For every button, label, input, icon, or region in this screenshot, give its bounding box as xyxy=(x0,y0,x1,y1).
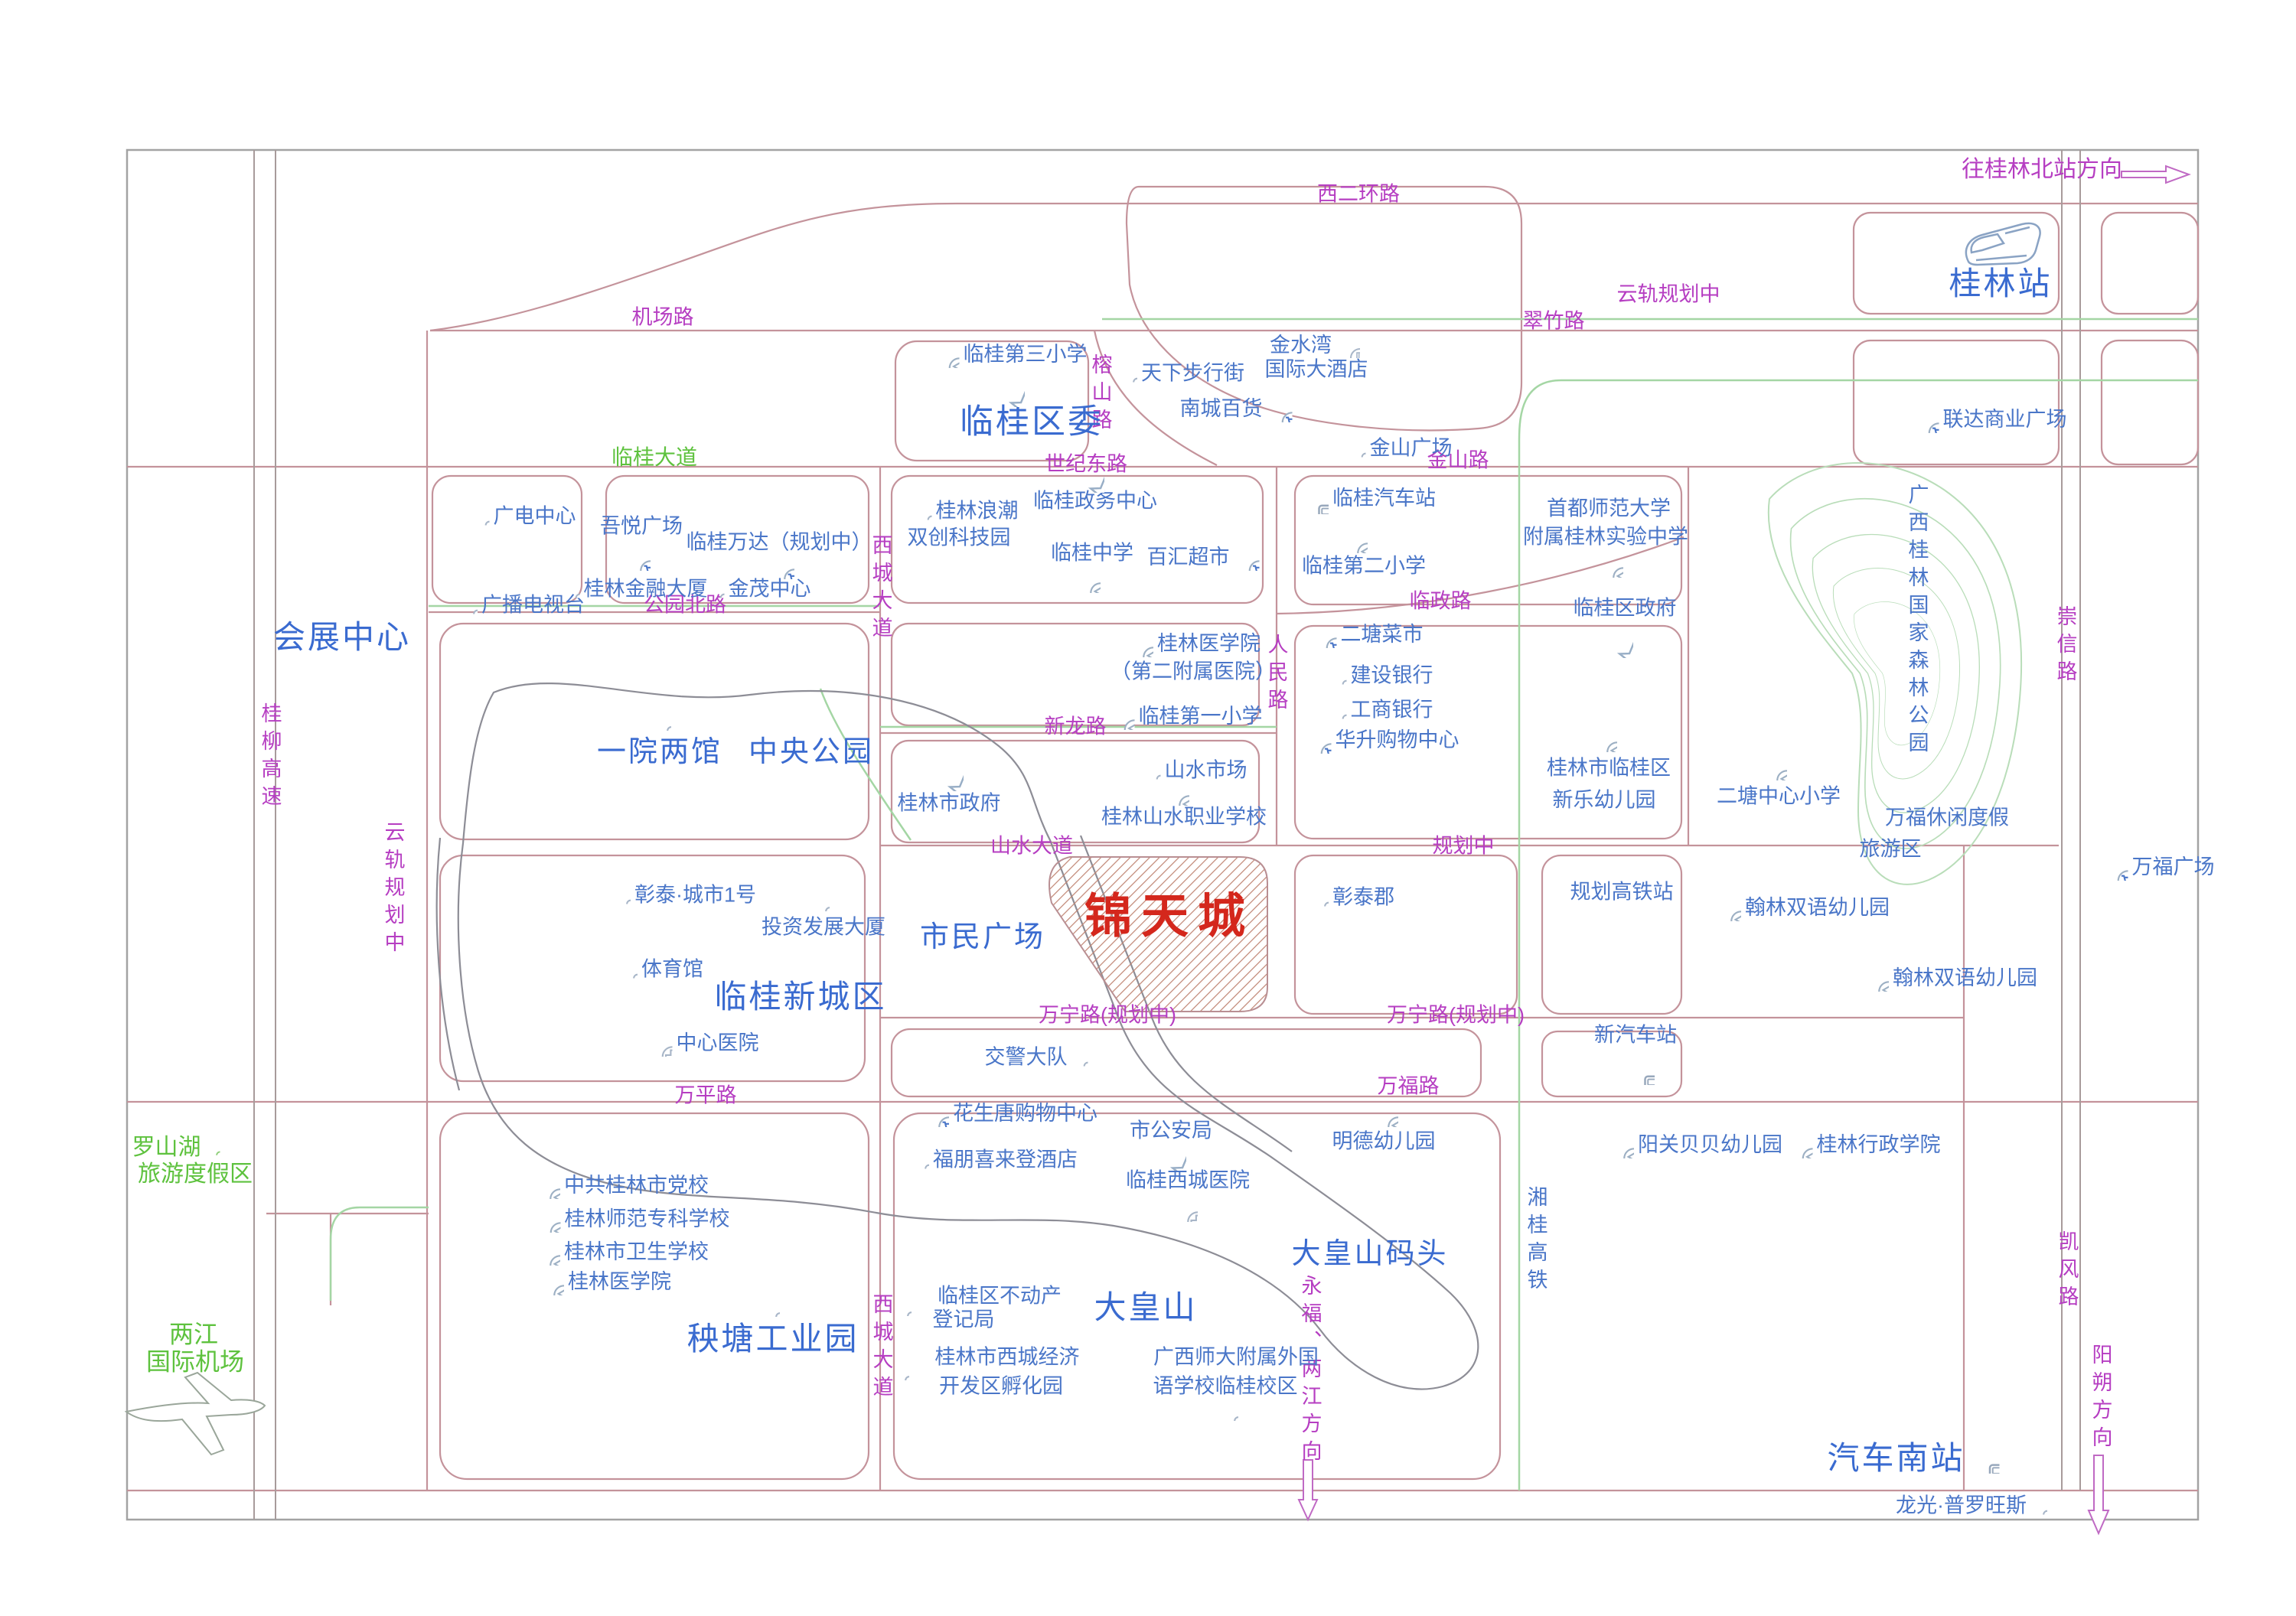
investment-tower: 投资发展大厦 xyxy=(762,915,885,939)
map-label-text: 湘桂高铁 xyxy=(1523,1186,1547,1296)
map-label-text: 广西师大附属外国 xyxy=(1153,1345,1319,1369)
cart-icon xyxy=(1267,396,1293,422)
map-label-text: 锦天城 xyxy=(1084,889,1254,943)
tianxia-walking-street: 天下步行街 xyxy=(1120,361,1244,385)
map-label-text: 秧塘工业园 xyxy=(687,1321,859,1357)
road-xierhuan: 西二环路 xyxy=(1317,182,1400,206)
shanshui-market: 山水市场 xyxy=(1144,758,1247,782)
yangguan-beibei-kindergarten: 阳关贝贝幼儿园 xyxy=(1608,1132,1782,1158)
road-xicheng-south: 西城大道 xyxy=(869,1293,892,1403)
real-estate-bureau-2: 登记局 xyxy=(933,1308,995,1331)
map-label-text: 万福路 xyxy=(1378,1074,1440,1098)
map-label-text: 百汇超市 xyxy=(1147,546,1230,569)
normal-college: 桂林师范专科学校 xyxy=(535,1207,730,1233)
shanshui-vocational-school: 桂林山水职业学校 xyxy=(1101,805,1267,829)
map-label-text: 桂林师范专科学校 xyxy=(565,1207,730,1231)
map-label-text: 双创科技园 xyxy=(908,526,1011,549)
map-label-text: 临桂中学 xyxy=(1051,541,1133,565)
school-icon xyxy=(1591,726,1617,752)
map-label-text: 桂林市西城经济 xyxy=(935,1345,1080,1369)
map-label-text: 桂林市卫生学校 xyxy=(564,1240,709,1264)
map-label-text: 新汽车站 xyxy=(1594,1023,1677,1047)
map-label-text: 翰林双语幼儿园 xyxy=(1893,966,2037,990)
xicheng-incubator-1: 桂林市西城经济 xyxy=(935,1345,1080,1369)
school-icon xyxy=(1787,1132,1813,1158)
second-primary-school: 临桂第二小学 xyxy=(1302,554,1426,578)
map-label-text: 旅游度假区 xyxy=(138,1161,253,1188)
arrow-down-yangshuo-icon xyxy=(2089,1455,2108,1533)
mingde-kindergarten: 明德幼儿园 xyxy=(1332,1129,1436,1153)
guilin-city-government: 桂林市政府 xyxy=(898,791,1001,815)
map-label-text: 临桂政务中心 xyxy=(1033,489,1157,513)
road-wanning-east: 万宁路(规划中) xyxy=(1387,1003,1525,1027)
central-park: 中央公园 xyxy=(748,736,874,770)
luoshan-resort: 旅游度假区 xyxy=(138,1161,253,1188)
map-label-text: 云轨规划中 xyxy=(1617,282,1720,306)
map-label-text: 临桂新城区 xyxy=(714,979,886,1015)
circle-icon xyxy=(1071,1049,1088,1066)
train-icon xyxy=(1966,223,2040,265)
circle-icon xyxy=(895,1299,912,1316)
map-label-text: 汽车南站 xyxy=(1827,1440,1965,1477)
cart-icon xyxy=(625,545,651,571)
school-icon xyxy=(1075,567,1101,593)
road-linzheng: 临政路 xyxy=(1410,589,1472,613)
langchao-tech-park-2: 双创科技园 xyxy=(908,526,1011,549)
xinle-kindergarten-2: 新乐幼儿园 xyxy=(1553,788,1656,812)
gymnasium: 体育馆 xyxy=(621,957,703,981)
map-label-text: 桂林医学院 xyxy=(1157,632,1261,656)
map-label-text: 万平路 xyxy=(675,1083,737,1107)
circle-icon xyxy=(1221,1404,1238,1421)
map-label-text: （第二附属医院） xyxy=(1110,660,1276,683)
star-icon xyxy=(1600,624,1633,658)
map-label-text: 市民广场 xyxy=(920,921,1045,955)
citizen-square: 市民广场 xyxy=(920,921,1045,955)
map-label-text: 国际机场 xyxy=(146,1348,244,1377)
planned-hsr-station: 规划高铁站 xyxy=(1570,880,1674,904)
road-linggui-avenue: 临桂大道 xyxy=(612,445,697,470)
bus-icon xyxy=(1624,1054,1655,1085)
map-label-text: 会展中心 xyxy=(273,619,411,656)
third-primary-school: 临桂第三小学 xyxy=(934,342,1088,368)
map-label-text: 金茂中心 xyxy=(729,577,811,601)
gxnu-foreign-school-2: 语学校临桂校区 xyxy=(1153,1374,1298,1398)
map-label-text: 开发区孵化园 xyxy=(939,1374,1063,1398)
map-label-text: 临桂大道 xyxy=(612,445,697,470)
map-label-text: 桂林市临桂区 xyxy=(1547,756,1671,780)
school-icon xyxy=(1109,704,1135,730)
circle-icon xyxy=(895,1299,912,1316)
school-icon xyxy=(1863,966,1889,992)
map-label-text: 临桂第二小学 xyxy=(1302,554,1426,578)
map-label-text: 首都师范大学 xyxy=(1547,497,1671,520)
map-label-text: 临桂第一小学 xyxy=(1139,705,1263,728)
circle-icon xyxy=(614,887,631,904)
road-jichang: 机场路 xyxy=(632,305,694,329)
map-label-text: 广电中心 xyxy=(494,504,576,528)
jintiancheng-label: 锦天城 xyxy=(1084,889,1254,943)
star-icon xyxy=(1153,1139,1186,1172)
map-label-text: 桂林浪潮 xyxy=(936,499,1019,523)
map-label-text: 阳关贝贝幼儿园 xyxy=(1638,1133,1782,1157)
yangtang-industrial-park: 秧塘工业园 xyxy=(687,1321,859,1357)
circle-icon xyxy=(708,581,725,598)
map-label-text: 交警大队 xyxy=(985,1045,1068,1069)
circle-icon xyxy=(892,1363,909,1380)
map-label-text: 规划中 xyxy=(1433,834,1495,858)
cart-icon xyxy=(2102,855,2128,881)
map-label-text: 桂林金融大厦 xyxy=(584,577,708,601)
hospital-icon xyxy=(1172,1196,1198,1222)
circle-icon xyxy=(763,1300,780,1317)
broadcast-center: 广电中心 xyxy=(473,504,576,528)
map-label-text: 万宁路(规划中) xyxy=(1039,1003,1176,1027)
circle-icon xyxy=(1221,1404,1238,1421)
map-label-text: 附属桂林实验中学 xyxy=(1523,525,1688,549)
one-hospital-two-halls: 一院两馆 xyxy=(597,736,722,770)
map-label-text: 花生唐购物中心 xyxy=(953,1102,1097,1126)
bus-icon xyxy=(1298,484,1329,514)
map-label-text: 桂林医学院 xyxy=(568,1270,671,1294)
cart-icon xyxy=(768,553,794,579)
map-label-text: 西城大道 xyxy=(869,1293,892,1403)
health-school: 桂林市卫生学校 xyxy=(534,1240,709,1266)
administration-institute: 桂林行政学院 xyxy=(1787,1132,1941,1158)
circle-icon xyxy=(813,894,830,911)
lianda-plaza: 联达商业广场 xyxy=(1913,407,2067,433)
bus-icon xyxy=(1969,1443,2000,1474)
circle-icon xyxy=(654,714,671,731)
map-label-text: 临桂区不动产 xyxy=(938,1284,1062,1308)
map-label-text: 新龙路 xyxy=(1045,715,1107,738)
direction-guilin-north: 往桂林北站方向 xyxy=(1962,157,2122,184)
ertang-central-primary: 二塘中心小学 xyxy=(1717,784,1841,808)
map-label-text: 桂林山水职业学校 xyxy=(1101,805,1267,829)
map-label-text: 天下步行街 xyxy=(1141,361,1244,385)
map-label-text: 新乐幼儿园 xyxy=(1553,788,1656,812)
rail-xianggui: 湘桂高铁 xyxy=(1523,1186,1547,1296)
map-label-text: 山水大道 xyxy=(990,834,1073,858)
school-icon xyxy=(1342,527,1368,553)
linggui-bus-station: 临桂汽车站 xyxy=(1298,484,1436,514)
school-icon xyxy=(1342,527,1368,553)
map-label-text: 福朋喜来登酒店 xyxy=(933,1148,1078,1171)
circle-icon xyxy=(915,503,932,520)
circle-icon xyxy=(1330,702,1347,718)
map-label-text: 登记局 xyxy=(933,1308,995,1331)
hanlin-kindergarten-1: 翰林双语幼儿园 xyxy=(1715,895,1890,921)
huashengtang-mall: 花生唐购物中心 xyxy=(923,1101,1097,1127)
hospital-icon xyxy=(647,1031,673,1057)
arrow-right-icon xyxy=(2122,166,2189,183)
school-icon xyxy=(534,1173,560,1199)
map-label-text: 广西桂林国家森林公园 xyxy=(1904,484,1928,759)
government-affairs-center: 临桂政务中心 xyxy=(1033,489,1157,513)
convention-center: 会展中心 xyxy=(273,619,411,656)
map-label-text: 临桂区委 xyxy=(960,403,1104,442)
wanda-planned: 临桂万达（规划中） xyxy=(687,530,872,554)
central-hospital: 中心医院 xyxy=(647,1031,759,1057)
map-label-text: 大皇山 xyxy=(1094,1289,1197,1326)
map-label-text: 投资发展大厦 xyxy=(762,915,885,939)
map-label-text: 凯风路 xyxy=(2054,1230,2078,1313)
school-icon xyxy=(1163,780,1189,806)
linggui-new-town: 临桂新城区 xyxy=(714,979,886,1015)
map-label-text: 万福广场 xyxy=(2132,855,2215,879)
icbc-bank: 工商银行 xyxy=(1330,698,1433,722)
guilin-medical-univ-1: 桂林医学院 xyxy=(1127,631,1261,657)
zhangtai-county: 彰泰郡 xyxy=(1312,885,1394,909)
cart-icon xyxy=(1306,728,1332,754)
real-estate-bureau-1: 临桂区不动产 xyxy=(938,1284,1062,1308)
wanfu-resort-2: 旅游区 xyxy=(1860,837,1922,861)
star-icon xyxy=(1600,624,1633,658)
map-label-text: 吾悦广场 xyxy=(600,514,683,538)
finance-tower: 桂林金融大厦 xyxy=(563,577,708,601)
building-icon xyxy=(1336,334,1360,358)
map-label-text: 龙光·普罗旺斯 xyxy=(1896,1494,2027,1517)
road-wanfu: 万福路 xyxy=(1378,1074,1440,1098)
map-label-text: 联达商业广场 xyxy=(1943,408,2067,432)
map-label-text: 二塘中心小学 xyxy=(1717,784,1841,808)
map-canvas: 往桂林北站方向西二环路云轨规划中翠竹路机场路临桂大道世纪东路金山路公园北路临政路… xyxy=(0,0,2296,1616)
star-icon xyxy=(991,373,1025,407)
school-icon xyxy=(1075,567,1101,593)
wuyue-plaza: 吾悦广场 xyxy=(600,514,683,538)
monorail-planned-west: 云轨规划中 xyxy=(380,821,404,959)
map-label-text: 万福休闲度假 xyxy=(1885,806,2009,829)
map-label-text: 桂林行政学院 xyxy=(1817,1133,1941,1157)
map-label-text: 临桂汽车站 xyxy=(1332,487,1436,510)
road-shanshui: 山水大道 xyxy=(990,834,1073,858)
medical-college: 桂林医学院 xyxy=(538,1269,671,1295)
school-icon xyxy=(538,1269,564,1295)
circle-icon xyxy=(763,1300,780,1317)
road-chongxin: 崇信路 xyxy=(2053,605,2076,688)
jinshan-plaza: 金山广场 xyxy=(1349,436,1453,460)
circle-icon xyxy=(912,1152,929,1168)
map-label-text: 旅游区 xyxy=(1860,837,1922,861)
school-icon xyxy=(1163,780,1189,806)
direction-yangshuo: 阳朔方向 xyxy=(2088,1344,2112,1454)
map-label-text: 临桂第三小学 xyxy=(964,343,1088,367)
linggui-district-committee: 临桂区委 xyxy=(960,403,1104,442)
longguang-provence: 龙光·普罗旺斯 xyxy=(1896,1494,2047,1517)
map-label-text: 机场路 xyxy=(632,305,694,329)
expressway-guiliu: 桂柳高速 xyxy=(257,702,281,813)
map-label-text: 语学校临桂校区 xyxy=(1153,1374,1298,1398)
south-bus-station: 汽车南站 xyxy=(1827,1440,1999,1477)
star-icon xyxy=(930,757,964,791)
map-label-text: 明德幼儿园 xyxy=(1332,1129,1436,1153)
monorail-planned: 云轨规划中 xyxy=(1617,282,1720,306)
cart-icon xyxy=(1234,545,1260,571)
map-label-text: 翰林双语幼儿园 xyxy=(1745,896,1890,920)
linggui-middle-school: 临桂中学 xyxy=(1051,541,1133,565)
ccb-bank: 建设银行 xyxy=(1330,663,1433,687)
school-icon xyxy=(1761,754,1787,780)
map-label-text: 阳朔方向 xyxy=(2088,1344,2112,1454)
wanfu-plaza: 万福广场 xyxy=(2102,855,2215,881)
map-label-text: 桂林市政府 xyxy=(898,791,1001,815)
airplane-icon xyxy=(126,1373,265,1455)
committee-star xyxy=(991,373,1025,407)
map-label-text: 万宁路(规划中) xyxy=(1387,1003,1525,1027)
sheraton-hotel: 福朋喜来登酒店 xyxy=(912,1148,1078,1171)
map-label-text: 规划高铁站 xyxy=(1570,880,1674,904)
xicheng-hospital: 临桂西城医院 xyxy=(1126,1168,1250,1192)
nancheng-department-store: 南城百货 xyxy=(1180,396,1293,422)
capital-normal-univ-1: 首都师范大学 xyxy=(1547,497,1671,520)
direction-yongfu-liangjiang: 永福、两江方向 xyxy=(1297,1275,1321,1468)
map-label-text: 华升购物中心 xyxy=(1336,728,1459,752)
map-label-text: 建设银行 xyxy=(1351,663,1433,687)
jinshuiwan-hotel-2: 国际大酒店 xyxy=(1265,357,1368,381)
map-label-text: 中共桂林市党校 xyxy=(564,1174,709,1197)
cart-icon xyxy=(923,1101,949,1127)
school-icon xyxy=(1591,726,1617,752)
circle-icon xyxy=(1349,440,1366,457)
jinmao-center: 金茂中心 xyxy=(708,577,811,601)
national-forest-park: 广西桂林国家森林公园 xyxy=(1904,484,1928,759)
circle-icon xyxy=(473,508,490,525)
circle-green-icon xyxy=(205,1140,220,1155)
map-label-text: 金山广场 xyxy=(1370,436,1453,460)
circle-icon xyxy=(813,894,830,911)
circle-icon xyxy=(2030,1497,2047,1514)
road-cuizhu: 翠竹路 xyxy=(1523,309,1585,333)
map-label-text: 崇信路 xyxy=(2053,605,2076,688)
road-wanping: 万平路 xyxy=(675,1083,737,1107)
linggui-district-government: 临桂区政府 xyxy=(1574,596,1677,620)
cart-icon xyxy=(768,553,794,579)
star-icon xyxy=(1071,459,1104,493)
school-icon xyxy=(1761,754,1787,780)
school-icon xyxy=(1597,552,1623,578)
road-xinlong: 新龙路 xyxy=(1045,715,1107,738)
school-icon xyxy=(1372,1101,1398,1127)
hanlin-kindergarten-2: 翰林双语幼儿园 xyxy=(1863,966,2037,992)
map-label-text: 临桂区政府 xyxy=(1574,596,1677,620)
circle-icon xyxy=(1330,667,1347,684)
hospital-icon xyxy=(1172,1196,1198,1222)
map-label-text: 国际大酒店 xyxy=(1265,357,1368,381)
langchao-tech-park-1: 桂林浪潮 xyxy=(915,499,1019,523)
circle-icon xyxy=(563,581,580,598)
school-icon xyxy=(534,1240,560,1266)
school-icon xyxy=(1597,552,1623,578)
map-label-text: 体育馆 xyxy=(641,957,703,981)
circle-icon xyxy=(1120,365,1137,382)
school-icon xyxy=(1127,631,1153,657)
map-label-text: 工商银行 xyxy=(1351,698,1433,722)
circle-icon xyxy=(461,597,478,614)
traffic-police: 交警大队 xyxy=(985,1045,1088,1069)
xicheng-incubator-2: 开发区孵化园 xyxy=(939,1374,1063,1398)
map-label-text: 永福、两江方向 xyxy=(1297,1275,1321,1468)
map-label-text: 南城百货 xyxy=(1180,397,1263,421)
cart-icon xyxy=(1913,407,1939,433)
party-school: 中共桂林市党校 xyxy=(534,1173,709,1199)
road-planned: 规划中 xyxy=(1433,834,1495,858)
map-label-text: 云轨规划中 xyxy=(380,821,404,959)
map-label-text: 桂柳高速 xyxy=(257,702,281,813)
road-wanning-west: 万宁路(规划中) xyxy=(1039,1003,1176,1027)
map-label-text: 罗山湖 xyxy=(132,1135,201,1161)
star-icon xyxy=(1153,1139,1186,1172)
capital-normal-univ-2: 附属桂林实验中学 xyxy=(1523,525,1688,549)
map-label-text: 彰泰郡 xyxy=(1332,885,1394,909)
map-label-text: 中心医院 xyxy=(677,1031,759,1055)
star-icon xyxy=(1071,459,1104,493)
map-label-text: 临桂西城医院 xyxy=(1126,1168,1250,1192)
baihui-supermarket: 百汇超市 xyxy=(1147,545,1260,571)
ertang-market: 二塘菜市 xyxy=(1311,622,1424,648)
luoshan-lake: 罗山湖 xyxy=(132,1135,220,1161)
map-label-text: 桂林站 xyxy=(1949,266,2052,302)
jinshuiwan-hotel-1: 金水湾 xyxy=(1270,334,1360,358)
map-label-text: 金水湾 xyxy=(1270,334,1332,357)
bus-icon xyxy=(1624,1054,1655,1085)
map-label-text: 彰泰·城市1号 xyxy=(634,883,756,907)
map-label-text: 翠竹路 xyxy=(1523,309,1585,333)
map-label-text: 山水市场 xyxy=(1165,758,1247,782)
cart-icon xyxy=(625,545,651,571)
map-label-text: 二塘菜市 xyxy=(1341,623,1424,647)
school-icon xyxy=(535,1207,561,1233)
star-icon xyxy=(930,757,964,791)
circle-icon xyxy=(1144,762,1161,779)
map-label-text: 往桂林北站方向 xyxy=(1962,157,2122,184)
map-label-text: 中央公园 xyxy=(748,736,874,770)
school-icon xyxy=(1715,895,1741,921)
map-label-text: 西二环路 xyxy=(1317,182,1400,206)
school-icon xyxy=(1372,1101,1398,1127)
liangjiang-airport-1: 两江 xyxy=(169,1321,218,1349)
gxnu-foreign-school-1: 广西师大附属外国 xyxy=(1153,1345,1319,1369)
dahuangshan-wharf: 大皇山码头 xyxy=(1291,1238,1448,1272)
road-kaifeng: 凯风路 xyxy=(2054,1230,2078,1313)
map-label-text: 一院两馆 xyxy=(597,736,722,770)
map-label-text: 大皇山码头 xyxy=(1291,1238,1448,1272)
zhangtai-city-no1: 彰泰·城市1号 xyxy=(614,883,756,907)
circle-icon xyxy=(892,1363,909,1380)
map-label-text: 两江 xyxy=(169,1321,218,1349)
guilin-station: 桂林站 xyxy=(1949,266,2052,302)
dahuangshan: 大皇山 xyxy=(1094,1289,1197,1326)
map-label-text: 临桂万达（规划中） xyxy=(687,530,872,554)
map-label-text: 临政路 xyxy=(1410,589,1472,613)
new-bus-station: 新汽车站 xyxy=(1594,1023,1677,1047)
huasheng-mall: 华升购物中心 xyxy=(1306,728,1459,754)
circle-icon xyxy=(1312,889,1329,906)
guilin-medical-univ-2: （第二附属医院） xyxy=(1110,660,1276,683)
school-icon xyxy=(1608,1132,1634,1158)
first-primary-school: 临桂第一小学 xyxy=(1109,704,1263,730)
cart-icon xyxy=(1311,622,1337,648)
circle-icon xyxy=(621,961,638,978)
wanfu-resort-1: 万福休闲度假 xyxy=(1885,806,2009,829)
circle-icon xyxy=(654,714,671,731)
liangjiang-airport-2: 国际机场 xyxy=(146,1348,244,1377)
school-icon xyxy=(934,342,960,368)
xinle-kindergarten-1: 桂林市临桂区 xyxy=(1547,756,1671,780)
